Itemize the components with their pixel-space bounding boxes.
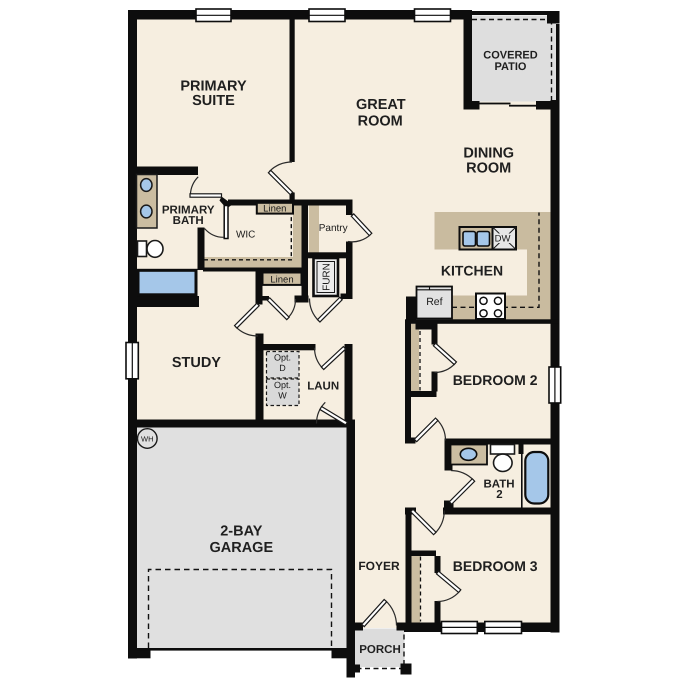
svg-text:Linen: Linen — [270, 274, 293, 285]
svg-text:BEDROOM 3: BEDROOM 3 — [453, 558, 538, 574]
svg-text:2: 2 — [496, 489, 502, 501]
svg-text:GREAT: GREAT — [356, 97, 406, 113]
svg-text:Opt.: Opt. — [274, 380, 291, 390]
svg-text:ROOM: ROOM — [358, 113, 403, 129]
svg-text:W: W — [278, 391, 287, 401]
svg-text:GARAGE: GARAGE — [209, 540, 273, 556]
svg-text:LAUN: LAUN — [307, 381, 339, 393]
svg-text:PATIO: PATIO — [495, 61, 527, 73]
svg-text:ROOM: ROOM — [466, 160, 511, 176]
svg-text:STUDY: STUDY — [172, 355, 221, 371]
svg-text:BATH: BATH — [173, 215, 204, 227]
svg-text:FURN: FURN — [321, 263, 332, 291]
svg-text:KITCHEN: KITCHEN — [441, 262, 503, 278]
svg-text:Opt.: Opt. — [274, 353, 291, 363]
svg-text:D: D — [279, 363, 286, 373]
svg-text:PORCH: PORCH — [359, 644, 401, 656]
svg-text:BEDROOM 2: BEDROOM 2 — [453, 372, 538, 388]
svg-text:Ref: Ref — [426, 296, 442, 308]
svg-text:Linen: Linen — [263, 204, 286, 215]
svg-text:SUITE: SUITE — [192, 93, 235, 109]
svg-text:2-BAY: 2-BAY — [220, 524, 263, 540]
svg-text:Pantry: Pantry — [319, 223, 348, 234]
svg-text:DINING: DINING — [463, 145, 514, 161]
svg-text:COVERED: COVERED — [483, 50, 537, 62]
svg-text:FOYER: FOYER — [358, 559, 400, 573]
svg-text:WIC: WIC — [236, 230, 255, 241]
svg-text:DW: DW — [495, 234, 511, 245]
svg-text:WH: WH — [141, 434, 154, 443]
